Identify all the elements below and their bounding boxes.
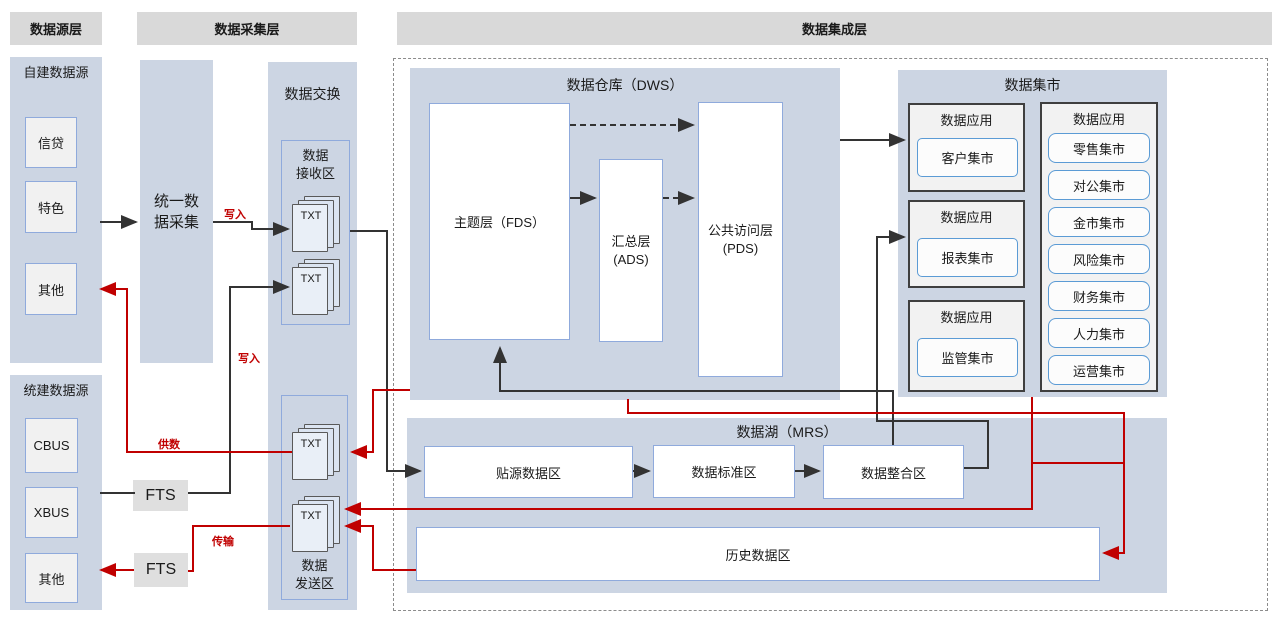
mart-hr: 人力集市 [1048, 318, 1150, 348]
app-box-label: 数据应用 [910, 207, 1023, 226]
flow-label-supply: 供数 [158, 436, 180, 452]
app-box-label: 数据应用 [910, 110, 1023, 129]
box-pds: 公共访问层 (PDS) [698, 102, 783, 377]
txt-label: TXT [294, 510, 328, 522]
receive-zone-line1: 数据 [302, 147, 328, 165]
flow-label-write-mid: 写入 [238, 350, 260, 366]
mart-risk: 风险集市 [1048, 244, 1150, 274]
box-ads: 汇总层 (ADS) [599, 159, 663, 342]
txt-file-icon: TXT [292, 196, 342, 254]
box-data-standard-area: 数据标准区 [653, 445, 795, 498]
txt-file-icon: TXT [292, 259, 342, 317]
mart-corporate: 对公集市 [1048, 170, 1150, 200]
fts-box-bottom: FTS [134, 553, 188, 587]
fts-box-top: FTS [133, 480, 188, 511]
ads-label: 汇总层 (ADS) [611, 233, 650, 269]
send-zone-line2: 发送区 [295, 575, 334, 593]
txt-file-icon: TXT [292, 424, 342, 482]
app-box-label: 数据应用 [910, 307, 1023, 326]
receive-zone-line2: 接收区 [296, 165, 335, 183]
mart-retail: 零售集市 [1048, 133, 1150, 163]
unified-collection-line2: 据采集 [154, 212, 199, 233]
box-cbus: CBUS [25, 418, 78, 473]
mart-customer: 客户集市 [917, 138, 1018, 177]
send-zone-title: 数据 发送区 [281, 556, 348, 594]
box-fds: 主题层（FDS） [429, 103, 570, 340]
mart-operations: 运营集市 [1048, 355, 1150, 385]
txt-label: TXT [294, 210, 328, 222]
flow-label-write-top: 写入 [224, 206, 246, 222]
region-self-built-title: 自建数据源 [10, 62, 102, 80]
mrs-title: 数据湖（MRS） [407, 423, 1167, 440]
header-data-collect-layer: 数据采集层 [137, 12, 357, 45]
pds-line2: (PDS) [723, 240, 758, 258]
box-source-paste-area: 贴源数据区 [424, 446, 633, 498]
box-data-integrate-area: 数据整合区 [823, 445, 964, 499]
txt-file-icon: TXT [292, 496, 342, 554]
mart-report: 报表集市 [917, 238, 1018, 277]
header-data-integration-layer: 数据集成层 [397, 12, 1272, 45]
pds-line1: 公共访问层 [708, 222, 773, 240]
header-data-source-layer: 数据源层 [10, 12, 102, 45]
mart-regulatory: 监管集市 [917, 338, 1018, 377]
data-exchange-title: 数据交换 [268, 85, 357, 103]
box-xbus: XBUS [25, 487, 78, 538]
receive-zone-title: 数据 接收区 [281, 146, 350, 184]
box-other-self: 其他 [25, 263, 77, 315]
unified-collection-label: 统一数 据采集 [140, 190, 213, 234]
flow-label-transfer: 传输 [212, 533, 234, 549]
dws-title: 数据仓库（DWS） [410, 76, 840, 94]
region-unified-built-title: 统建数据源 [10, 380, 102, 398]
ads-line2: (ADS) [613, 251, 648, 269]
box-credit: 信贷 [25, 117, 77, 168]
mart-finance: 财务集市 [1048, 281, 1150, 311]
mart-gold: 金市集市 [1048, 207, 1150, 237]
app-box-label: 数据应用 [1042, 109, 1156, 128]
ads-line1: 汇总层 [611, 233, 650, 251]
box-special: 特色 [25, 181, 77, 233]
unified-collection-line1: 统一数 [154, 191, 199, 212]
box-history-data-area: 历史数据区 [416, 527, 1100, 581]
txt-label: TXT [294, 273, 328, 285]
txt-label: TXT [294, 438, 328, 450]
data-mart-title: 数据集市 [898, 76, 1167, 94]
send-zone-line1: 数据 [301, 557, 327, 575]
architecture-diagram: 数据源层 数据采集层 数据集成层 自建数据源 信贷 特色 其他 统建数据源 CB… [0, 0, 1280, 627]
box-other-unified: 其他 [25, 553, 78, 603]
pds-label: 公共访问层 (PDS) [708, 222, 773, 258]
